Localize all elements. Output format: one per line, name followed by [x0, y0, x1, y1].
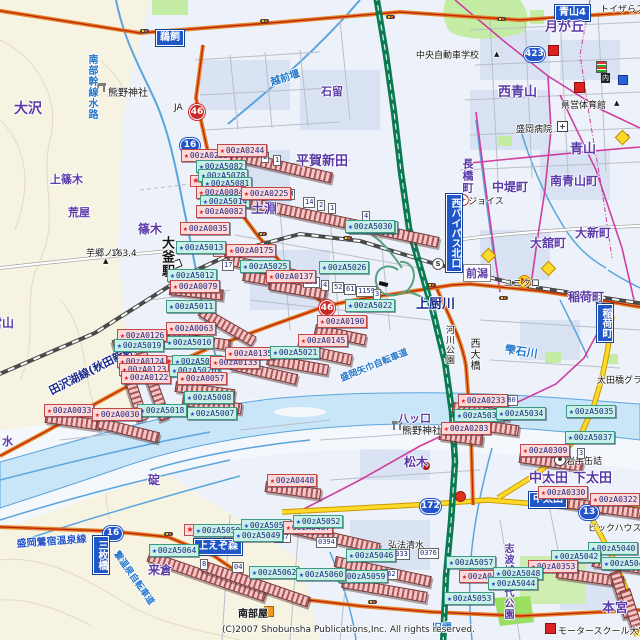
star-icon: ★ [273, 347, 278, 358]
listing-code: 00zA0079 [179, 281, 218, 292]
map-viewport[interactable]: MS+内+★★★★★4616464231617213鵜飼青山4西バイパス北口稲荷… [0, 0, 640, 640]
listing-code: 00zA0063 [175, 323, 214, 334]
star-icon: ★ [169, 301, 174, 312]
listing-code: 00zA5059 [347, 571, 386, 582]
listing-code: 00zA5064 [158, 545, 197, 556]
listing-code: 00zA5041 [610, 558, 640, 569]
star-icon: ★ [569, 406, 574, 417]
unit-tag: 0394 [316, 537, 337, 548]
star-icon: ★ [449, 557, 454, 568]
star-icon: ★ [604, 558, 609, 569]
listing-code: 00zA5018 [146, 405, 185, 416]
star-icon: ★ [348, 221, 353, 232]
listing-code: 00zA0057 [186, 373, 225, 384]
place-name: 荒屋 [68, 204, 90, 220]
star-icon: ★ [95, 409, 100, 420]
route-shield: 172 [420, 499, 441, 514]
listing-marker[interactable]: ★00zA5010 [164, 336, 214, 349]
listing-code: 00zA5049 [242, 530, 281, 541]
route-shield: 46 [319, 300, 335, 316]
listing-code: 00zA0448 [276, 475, 315, 486]
listing-marker[interactable]: ★00zA0322 [590, 493, 640, 506]
listing-code: 00zA0283 [450, 423, 489, 434]
signal-icon [368, 600, 377, 604]
listing-code: 00zA0330 [547, 487, 586, 498]
unit-tag: 3 [577, 448, 585, 459]
place-name: ▲ [103, 257, 108, 265]
listing-marker[interactable]: ★00zA0244 [217, 144, 267, 157]
place-name: 松木 [404, 453, 428, 470]
star-icon: ★ [167, 337, 172, 348]
star-icon: ★ [447, 593, 452, 604]
listing-marker[interactable]: ★00zA5037 [565, 431, 615, 444]
place-name: 来倉 [148, 561, 172, 578]
star-icon: ★ [286, 522, 291, 533]
unit-tag: 1 [273, 155, 281, 166]
listing-marker[interactable]: ★00zA0122 [121, 371, 171, 384]
place-name: トイザらス [600, 2, 640, 15]
place-name: 盛岡病院 [516, 122, 552, 135]
listing-code: 00zA5011 [175, 301, 214, 312]
listing-code: 00zA0082 [205, 206, 244, 217]
star-icon: ★ [523, 445, 528, 456]
toll-icon [379, 281, 389, 287]
place-name: 大舘町 [530, 234, 566, 251]
box-red-icon[interactable] [545, 623, 556, 634]
place-name: 西大橋 [466, 338, 481, 371]
unit-tag: 14 [303, 197, 315, 208]
place-name: 篠木 [138, 220, 162, 237]
star-icon: ★ [152, 545, 157, 556]
signal-icon [427, 283, 436, 287]
listing-marker[interactable]: ★00zA5007 [187, 407, 237, 420]
listing-marker[interactable]: ★00zA0175 [226, 244, 276, 257]
place-name: 平賀新田 [296, 150, 348, 169]
signal-icon [260, 19, 269, 23]
signal-icon [164, 532, 173, 536]
signal-icon [258, 232, 267, 236]
listing-code: 00zA0190 [326, 316, 365, 327]
listing-marker[interactable]: ★00zA5046 [346, 549, 396, 562]
place-name: 南部幹線水路 [84, 54, 99, 120]
star-icon: ★ [348, 300, 353, 311]
signal-icon [343, 236, 352, 240]
listing-marker[interactable]: ★00zA5053 [444, 592, 494, 605]
star-icon: ★ [173, 281, 178, 292]
listing-marker[interactable]: ★00zA5019 [114, 339, 164, 352]
star-icon: ★ [499, 408, 504, 419]
listing-marker[interactable]: ★00zA5057 [446, 556, 496, 569]
listing-code: 00zA5021 [279, 347, 318, 358]
route-shield: 13 [579, 505, 599, 520]
star-icon: ★ [322, 262, 327, 273]
listing-marker[interactable]: ★00zA0330 [538, 486, 588, 499]
listing-marker[interactable]: ★00zA0283 [441, 422, 491, 435]
star-icon: ★ [462, 571, 467, 582]
listing-marker[interactable]: ★00zA5022 [345, 299, 395, 312]
listing-marker[interactable]: ★00zA0063 [166, 322, 216, 335]
place-name: 前潟 [463, 264, 491, 282]
listing-marker[interactable]: ★00zA0079 [170, 280, 220, 293]
listing-code: 00zA0035 [189, 223, 228, 234]
star-icon: ★ [491, 578, 496, 589]
listing-code: 00zA5060 [305, 569, 344, 580]
box-stripe-icon[interactable] [596, 61, 607, 73]
star-icon: ★ [568, 432, 573, 443]
listing-marker[interactable]: ★00zA0033 [44, 404, 94, 417]
listing-marker[interactable]: ★00zA5034 [496, 407, 546, 420]
listing-code: 00zA0225 [250, 188, 289, 199]
unit-tag: 04 [232, 562, 244, 573]
star-icon: ★ [296, 516, 301, 527]
star-icon: ★ [244, 188, 249, 199]
star-icon: ★ [236, 530, 241, 541]
unit-tag: 2 [317, 200, 325, 211]
listing-marker[interactable]: ★00zA5049 [233, 529, 283, 542]
listing-code: 00zA0122 [130, 372, 169, 383]
listing-marker[interactable]: ★00zA5044 [488, 577, 538, 590]
place-name: 越前堰 [268, 65, 301, 89]
listing-marker[interactable]: ★00zA5026 [319, 261, 369, 274]
listing-code: 00zA5030 [354, 221, 393, 232]
signal-icon [386, 15, 395, 19]
box-blue-icon[interactable] [618, 75, 628, 85]
listing-marker[interactable]: ★00zA5052 [293, 515, 343, 528]
unit-tag: 52 [332, 282, 344, 293]
listing-marker[interactable]: ★00zA0137 [266, 270, 316, 283]
star-icon: ★ [269, 271, 274, 282]
star-icon: ★ [183, 223, 188, 234]
listing-code: 00zA5008 [193, 392, 232, 403]
listing-code: 00zA0233 [467, 395, 506, 406]
star-icon: ★ [169, 323, 174, 334]
listing-code: 00zA5037 [574, 432, 613, 443]
star-icon: ★ [299, 569, 304, 580]
star-icon: ★ [117, 340, 122, 351]
place-name: 土淵 [251, 198, 277, 217]
place-name: ビックハウス [588, 521, 640, 534]
unit-tag: 1 [328, 203, 336, 214]
listing-code: 00zA5019 [123, 340, 162, 351]
listing-code: 00zA5022 [354, 300, 393, 311]
listing-code: 00zA0030 [101, 409, 140, 420]
star-icon: ★ [541, 487, 546, 498]
listing-code: 00zA5007 [196, 408, 235, 419]
listing-marker[interactable]: ★00zA5062 [249, 566, 299, 579]
signal-icon [499, 296, 508, 300]
route-shield: 423 [524, 47, 545, 62]
place-name: 南青山町 [550, 172, 598, 189]
listing-marker[interactable]: ★00zA5041 [601, 557, 640, 570]
listing-code: 00zA0137 [275, 271, 314, 282]
area-badge: 鵜飼 [156, 30, 184, 46]
listing-code: 00zA5035 [575, 406, 614, 417]
listing-code: 00zA5057 [455, 557, 494, 568]
diamond-icon[interactable] [481, 248, 497, 264]
star-icon: ★ [252, 567, 257, 578]
place-name: JA [174, 103, 183, 113]
place-name: 石留 [321, 83, 343, 99]
listing-marker[interactable]: ★00zA0309 [520, 444, 570, 457]
place-name: 青山 [570, 138, 596, 157]
box-dark-icon[interactable]: 内 [601, 73, 610, 83]
listing-marker[interactable]: ★00zA0082 [196, 205, 246, 218]
listing-marker[interactable]: ★00zA5060 [296, 568, 346, 581]
listing-code: 00zA0175 [235, 245, 274, 256]
place-name: 南部屋 [238, 605, 268, 620]
place-name: 中太田 [529, 467, 568, 486]
star-icon: ★ [179, 242, 184, 253]
dot-red-icon[interactable] [455, 491, 466, 502]
listing-marker[interactable]: ★00zA5030 [345, 220, 395, 233]
listing-code: 00zA5044 [497, 578, 536, 589]
star-icon: ★ [444, 423, 449, 434]
area-badge: 稲荷町 [597, 304, 613, 342]
signal-icon [140, 29, 149, 33]
listing-code: 00zA0145 [307, 335, 346, 346]
place-name: 太田橋グラ [597, 373, 640, 386]
listing-marker[interactable]: ★00zA0057 [177, 372, 227, 385]
place-name: 雫石川 [504, 341, 539, 361]
listing-code: 00zA5026 [328, 262, 367, 273]
star-icon: ★ [461, 395, 466, 406]
place-name: 月が丘 [545, 16, 584, 35]
place-name: 長橋町 [459, 158, 475, 194]
place-name: ▲ [494, 50, 499, 58]
listing-marker[interactable]: ★00zA0225 [241, 187, 291, 200]
listing-marker[interactable]: ★00zA0448 [267, 474, 317, 487]
place-name: モータースクール大宮 [558, 624, 640, 637]
place-name: 本宮 [602, 597, 628, 616]
star-icon: ★ [320, 316, 325, 327]
listing-code: 00zA0322 [599, 494, 638, 505]
place-name: ▲ [614, 99, 619, 107]
copyright-notice: (C)2007 Shobunsha Publications,Inc. All … [222, 625, 475, 635]
listing-marker[interactable]: ★00zA5035 [566, 405, 616, 418]
star-icon: ★ [457, 410, 462, 421]
place-name: 大沢 [14, 98, 42, 118]
star-icon: ★ [124, 372, 129, 383]
place-name: 熊野神社 [402, 422, 442, 437]
box-red-icon[interactable] [574, 82, 585, 93]
listing-code: 00zA0033 [53, 405, 92, 416]
place-name: 西青山 [498, 81, 537, 100]
place-name: 稲荷町 [568, 288, 604, 305]
unit-tag: 0376 [418, 548, 439, 559]
listing-code: 00zA0135 [234, 348, 273, 359]
place-name: 中堤町 [492, 178, 528, 195]
listing-marker[interactable]: ★00zA0035 [180, 222, 230, 235]
route-shield: 46 [189, 104, 205, 120]
listing-code: 00zA5053 [453, 593, 492, 604]
place-name: 上篠木 [50, 171, 83, 187]
listing-code: 00zA5013 [185, 242, 224, 253]
listing-marker[interactable]: ★00zA5008 [184, 391, 234, 404]
place-name: 県営体育館 [561, 98, 606, 111]
star-icon: ★ [301, 335, 306, 346]
place-name: 中央自動車学校 [416, 48, 479, 61]
star-icon: ★ [196, 525, 201, 536]
unit-tag: 17 [222, 260, 234, 271]
unit-tag: 4 [321, 280, 329, 291]
star-icon: ★ [229, 245, 234, 256]
place-name: 碇 [148, 471, 160, 488]
star-icon: ★ [47, 405, 52, 416]
place-name: 大新町 [575, 224, 611, 241]
diamond-icon[interactable] [541, 261, 557, 277]
place-name: 上厨川 [416, 293, 455, 312]
place-name: 下太田 [573, 467, 612, 486]
listing-code: 00zA5046 [355, 550, 394, 561]
listing-code: 00zA0244 [226, 145, 265, 156]
place-name: 熊野神社 [108, 84, 148, 99]
star-icon: ★ [228, 348, 233, 359]
listing-code: 00zA5040 [597, 543, 636, 554]
diamond-icon[interactable] [615, 130, 631, 146]
listing-marker[interactable]: ★00zA5011 [166, 300, 216, 313]
unit-tag: 61 [344, 284, 356, 295]
star-icon: ★ [180, 373, 185, 384]
star-icon: ★ [593, 494, 598, 505]
listing-code: 00zA5034 [505, 408, 544, 419]
star-icon: ★ [243, 261, 248, 272]
place-name: ユニクロ [504, 276, 540, 289]
area-badge: 三枚橋 [93, 536, 109, 574]
star-icon: ★ [184, 150, 189, 161]
place-name: ジョイス [468, 194, 504, 207]
area-badge: 西バイパス北口 [446, 194, 462, 272]
listing-marker[interactable]: ★00zA0135 [225, 347, 275, 360]
post-icon[interactable]: + [557, 121, 568, 132]
star-icon: ★ [190, 408, 195, 419]
place-name: 163.4 [111, 249, 137, 259]
box-red-icon[interactable] [548, 45, 559, 56]
place-name: 河川公園 [443, 325, 456, 365]
signal-icon [497, 17, 506, 21]
listing-marker[interactable]: ★00zA5018 [137, 404, 187, 417]
listing-marker[interactable]: ★00zA0233 [458, 394, 508, 407]
listing-marker[interactable]: ★00zA0190 [317, 315, 367, 328]
listing-marker[interactable]: ★00zA0145 [298, 334, 348, 347]
listing-code: 00zA5062 [258, 567, 297, 578]
star-icon: ★ [199, 206, 204, 217]
listing-marker[interactable]: ★00zA0030 [92, 408, 142, 421]
star-icon: ★ [349, 550, 354, 561]
star-icon: ★ [187, 392, 192, 403]
jusco-icon[interactable]: S [432, 258, 444, 270]
place-name: 盛岡鶯宿温泉線 [16, 530, 87, 550]
listing-marker[interactable]: ★00zA5064 [149, 544, 199, 557]
star-icon: ★ [270, 475, 275, 486]
star-icon: ★ [220, 145, 225, 156]
listing-code: 00zA5052 [302, 516, 341, 527]
listing-marker[interactable]: ★00zA5021 [270, 346, 320, 359]
listing-code: 00zA0309 [529, 445, 568, 456]
star-icon: ★ [213, 357, 218, 368]
unit-tag: 8 [200, 559, 208, 570]
listing-marker[interactable]: ★00zA5013 [176, 241, 226, 254]
listing-code: 00zA5010 [173, 337, 212, 348]
place-name: 水 [2, 433, 13, 449]
place-name: 営山 [0, 314, 14, 331]
